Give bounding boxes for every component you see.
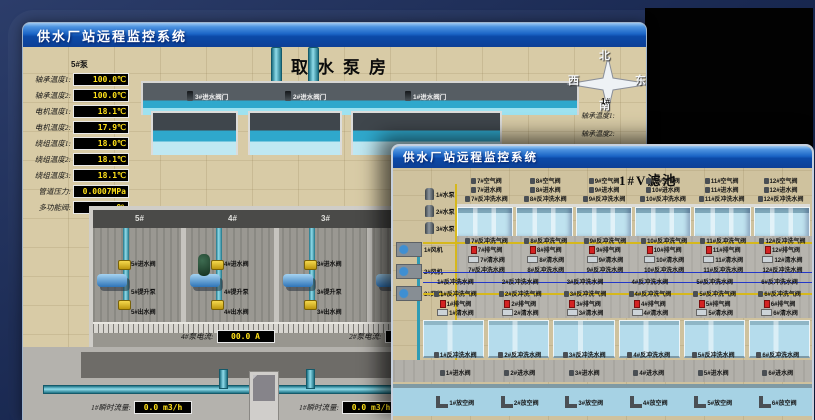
valve-icon [762, 370, 767, 376]
sensor-value: 18.1℃ [73, 105, 129, 118]
valve-label: 6#反冲洗水阀 [761, 277, 798, 286]
clean-water-valve-icon [703, 256, 714, 263]
valve-label: 10#进水阀 [652, 185, 680, 194]
red-valve-icon [765, 246, 771, 254]
sensor-row: 绕组温度2: 18.1℃ [23, 153, 141, 166]
filter-cells-top [457, 204, 810, 239]
inlet-valve-icon[interactable] [211, 260, 224, 270]
flow-readout-1: 1#瞬时流量: 0.0 m3/h [91, 401, 192, 414]
sensor-value: 18.1℃ [73, 169, 129, 182]
red-valve-icon [530, 246, 536, 254]
valve-icon [756, 352, 761, 358]
valve-label: 9#反冲洗水阀 [589, 194, 626, 203]
backwash-water-row-top: 7#反冲洗水阀8#反冲洗水阀9#反冲洗水阀10#反冲洗水阀11#反冲洗水阀12#… [457, 194, 810, 203]
valve-label: 10#反冲洗水阀 [646, 194, 686, 203]
valve-label: 9#空气阀 [595, 176, 620, 185]
backwash-water-pipe-row-bottom: 1#反冲洗水阀2#反冲洗水阀3#反冲洗水阀4#反冲洗水阀5#反冲洗水阀6#反冲洗… [423, 277, 812, 286]
backwash-gas-valve[interactable]: 11#反冲洗气阀 [694, 236, 753, 245]
valve-icon [629, 291, 634, 297]
red-valve-icon [699, 300, 705, 308]
pump-icon [425, 188, 434, 200]
pump4-current-readout: 4#泵电流: 00.0 A [181, 330, 275, 343]
inlet-valve[interactable]: 1#进水阀 [423, 368, 488, 377]
panel-header: 1# [601, 97, 610, 106]
valve-label: 9#反冲洗水阀 [587, 265, 624, 274]
sensor-label: 轴承温度2: [581, 129, 615, 139]
outlet-valve-icon[interactable] [304, 300, 317, 310]
water-pump-unit[interactable]: 1#水泵 [393, 188, 455, 200]
valve-icon [471, 178, 476, 184]
sensor-label: 轴承温度1: [581, 111, 615, 121]
filter-pool-scene: 1#V滤池 1#水泵 2#水泵 3#水泵 1#风机 [393, 168, 812, 420]
backwash-water-valve[interactable]: 10#反冲洗水阀 [633, 194, 692, 203]
valve-icon [465, 196, 470, 202]
clean-water-valve[interactable]: 7#清水阀 [457, 255, 516, 264]
valve-label: 8#反冲洗气阀 [530, 236, 567, 245]
inlet-valve[interactable]: 10#进水阀 [633, 185, 692, 194]
pump-label: 3#水泵 [436, 224, 455, 233]
lift-pump-icon[interactable] [283, 274, 313, 287]
backwash-water-valve[interactable]: 12#反冲洗水阀 [751, 194, 810, 203]
valve-label: 7#清水阀 [480, 255, 505, 264]
clean-water-valve[interactable]: 5#清水阀 [682, 308, 747, 317]
valve-label: 1#放空阀 [449, 398, 474, 407]
clean-water-valve[interactable]: 4#清水阀 [617, 308, 682, 317]
air-valve[interactable]: 11#空气阀 [692, 176, 751, 185]
sensor-value: 18.1℃ [73, 153, 129, 166]
sensor-label: 轴承温度1: [23, 74, 71, 85]
air-valve[interactable]: 8#空气阀 [516, 176, 575, 185]
filter-cell[interactable] [457, 207, 513, 239]
filter-cell[interactable] [694, 207, 750, 239]
inlet-valve-row-top: 7#进水阀8#进水阀9#进水阀10#进水阀11#进水阀12#进水阀 [457, 185, 810, 194]
valve-label: 2#清水阀 [514, 308, 539, 317]
valve-label: 11#反冲洗水阀 [705, 194, 745, 203]
drain-valve[interactable]: 4#放空阀 [617, 396, 682, 408]
filter-pool-titlebar[interactable]: 供水厂站远程监控系统 [393, 146, 812, 168]
intake-valve-label: 2#进水阀门 [293, 91, 326, 101]
sensor-label: 电机温度2: [23, 122, 71, 133]
drain-valve-icon [630, 396, 642, 408]
clean-water-valve[interactable]: 6#清水阀 [747, 308, 812, 317]
valve-label: 8#空气阀 [536, 176, 561, 185]
backwash-water-valve[interactable]: 4#反冲洗水阀 [617, 277, 682, 286]
inlet-valve-label: 5#进水阀 [131, 259, 156, 268]
valve-icon [705, 187, 710, 193]
inlet-valve-label: 4#进水阀 [224, 259, 249, 268]
valve-icon [700, 238, 705, 244]
backwash-gas-valve[interactable]: 10#反冲洗气阀 [635, 236, 694, 245]
valve-label: 11#清水阀 [715, 255, 743, 264]
inlet-valve[interactable]: 4#进水阀 [617, 368, 682, 377]
sensor-row: 电机温度2: 17.9℃ [23, 121, 141, 134]
outlet-valve-icon[interactable] [118, 300, 131, 310]
clean-water-valve-icon [762, 256, 773, 263]
valve-label: 6#排气阀 [771, 299, 796, 308]
pump-label: 5#提升泵 [131, 287, 156, 296]
blower-icon [396, 286, 422, 301]
air-valve[interactable]: 12#空气阀 [751, 176, 810, 185]
valve-label: 7#反冲洗气阀 [471, 236, 508, 245]
valve-label: 10#反冲洗气阀 [647, 236, 687, 245]
drain-valve-row: 1#放空阀2#放空阀3#放空阀4#放空阀5#放空阀6#放空阀 [423, 396, 810, 408]
backwash-water-valve[interactable]: 9#反冲洗水阀 [575, 194, 634, 203]
blower-icon [396, 242, 422, 257]
filter-cell[interactable] [576, 207, 632, 239]
window-filter-pool: 供水厂站远程监控系统 1#V滤池 1#水泵 2#水泵 3#水泵 [391, 144, 814, 420]
valve-label: 6#反冲洗水阀 [762, 350, 799, 359]
backwash-gas-valve[interactable]: 8#反冲洗气阀 [516, 236, 575, 245]
inlet-valve-icon[interactable] [304, 260, 317, 270]
sensor-label: 轴承温度2: [23, 90, 71, 101]
valve-label: 12#进水阀 [770, 185, 798, 194]
clean-water-valve[interactable]: 10#清水阀 [635, 255, 694, 264]
clean-water-valve-icon [632, 309, 643, 316]
valve-label: 4#清水阀 [644, 308, 669, 317]
drain-valve[interactable]: 5#放空阀 [681, 396, 746, 408]
lift-pump-icon[interactable] [97, 274, 127, 287]
valve-label: 11#空气阀 [711, 176, 739, 185]
inlet-valve-label: 3#进水阀 [317, 259, 342, 268]
valve-icon [187, 91, 193, 101]
backwash-water-valve[interactable]: 5#反冲洗水阀 [682, 277, 747, 286]
drain-valve-icon [436, 396, 448, 408]
pump-icon [425, 222, 434, 234]
backwash-gas-valve[interactable]: 1#反冲洗气阀 [423, 289, 488, 298]
outlet-valve-label: 5#出水阀 [131, 307, 156, 316]
valve-label: 10#清水阀 [656, 255, 684, 264]
intake-valve[interactable]: 3#进水阀门 [187, 91, 228, 101]
valve-label: 3#排气阀 [576, 299, 601, 308]
scene-title-pump-house: 取水泵房 [291, 53, 395, 78]
backwash-gas-valve[interactable]: 12#反冲洗气阀 [753, 236, 812, 245]
valve-label: 4#反冲洗气阀 [635, 289, 672, 298]
backwash-water-valve[interactable]: 1#反冲洗水阀 [423, 277, 488, 286]
vent-valve[interactable]: 7#排气阀 [457, 245, 516, 254]
vent-valve[interactable]: 10#排气阀 [635, 245, 694, 254]
valve-icon [434, 291, 439, 297]
valve-label: 10#空气阀 [652, 176, 680, 185]
valve-label: 2#进水阀 [510, 368, 535, 377]
clean-water-valve[interactable]: 9#清水阀 [575, 255, 634, 264]
lift-pump-icon[interactable] [190, 274, 220, 287]
valve-label: 2#反冲洗气阀 [505, 289, 542, 298]
current-label: 4#泵电流: [181, 331, 214, 342]
outlet-valve-label: 3#出水阀 [317, 307, 342, 316]
valve-icon [699, 196, 704, 202]
valve-icon [758, 291, 763, 297]
vent-valve[interactable]: 5#排气阀 [682, 299, 747, 308]
intake-valve-label: 3#进水阀门 [195, 91, 228, 101]
intake-valve[interactable]: 2#进水阀门 [285, 91, 326, 101]
pipe-stub [219, 369, 228, 389]
backwash-water-valve[interactable]: 10#反冲洗水阀 [635, 265, 694, 274]
backwash-gas-valve[interactable]: 4#反冲洗气阀 [617, 289, 682, 298]
valve-label: 2#放空阀 [514, 398, 539, 407]
flow-readout-2: 1#瞬时流量: 0.0 m3/h [299, 401, 400, 414]
drain-valve[interactable]: 1#放空阀 [423, 396, 488, 408]
backwash-gas-valve[interactable]: 9#反冲洗气阀 [575, 236, 634, 245]
backwash-water-valve[interactable]: 9#反冲洗水阀 [575, 265, 634, 274]
backwash-water-valve[interactable]: 6#反冲洗水阀 [747, 277, 812, 286]
backwash-gas-valve[interactable]: 6#反冲洗气阀 [747, 289, 812, 298]
inlet-valve[interactable]: 6#进水阀 [746, 368, 811, 377]
window-title: 供水厂站远程监控系统 [37, 26, 187, 45]
inlet-valve[interactable]: 2#进水阀 [488, 368, 553, 377]
valve-label: 6#清水阀 [773, 308, 798, 317]
backwash-water-valve[interactable]: 7#反冲洗水阀 [457, 265, 516, 274]
inlet-valve[interactable]: 7#进水阀 [457, 185, 516, 194]
sensor-row: 管道压力: 0.0007MPa [23, 185, 141, 198]
drain-valve[interactable]: 3#放空阀 [552, 396, 617, 408]
backwash-water-valve[interactable]: 12#反冲洗水阀 [753, 265, 812, 274]
pump-icon [425, 205, 434, 217]
intake-channel [248, 111, 342, 155]
valve-label: 1#反冲洗气阀 [440, 289, 477, 298]
valve-label: 4#反冲洗水阀 [633, 350, 670, 359]
air-valve-row: 7#空气阀8#空气阀9#空气阀10#空气阀11#空气阀12#空气阀 [457, 176, 810, 185]
valve-icon [583, 196, 588, 202]
vent-valve[interactable]: 9#排气阀 [575, 245, 634, 254]
valve-icon [764, 187, 769, 193]
desktop: 供水厂站远程监控系统 取水泵房 5#泵 轴承温度1: 100.0℃ 轴承温度2:… [0, 0, 815, 420]
backwash-water-valve[interactable]: 3#反冲洗水阀 [553, 277, 618, 286]
drain-channel: 1#放空阀2#放空阀3#放空阀4#放空阀5#放空阀6#放空阀 [393, 384, 812, 416]
backwash-water-valve[interactable]: 11#反冲洗水阀 [694, 265, 753, 274]
red-valve-icon [569, 300, 575, 308]
valve-label: 12#反冲洗水阀 [762, 265, 802, 274]
sensor-label: 电机温度1: [23, 106, 71, 117]
backwash-water-valve[interactable]: 5#反冲洗水阀 [681, 350, 746, 359]
valve-icon [440, 370, 445, 376]
valve-label: 11#反冲洗水阀 [703, 265, 743, 274]
vent-valve[interactable]: 1#排气阀 [423, 299, 488, 308]
clean-water-valve[interactable]: 1#清水阀 [423, 308, 488, 317]
drain-valve-icon [501, 396, 513, 408]
current-value: 00.0 A [217, 330, 275, 343]
intake-valve[interactable]: 1#进水阀门 [405, 91, 446, 101]
vent-valve[interactable]: 12#排气阀 [753, 245, 812, 254]
backwash-water-valve[interactable]: 11#反冲洗水阀 [692, 194, 751, 203]
valve-label: 1#反冲洗水阀 [437, 277, 474, 286]
backwash-water-valve[interactable]: 2#反冲洗水阀 [488, 277, 553, 286]
valve-label: 1#反冲洗水阀 [440, 350, 477, 359]
inlet-valve[interactable]: 12#进水阀 [751, 185, 810, 194]
valve-label: 2#反冲洗水阀 [502, 277, 539, 286]
blower-icon [396, 264, 422, 279]
sensor-row: 绕组温度1: 18.0℃ [23, 137, 141, 150]
valve-icon [641, 238, 646, 244]
backwash-gas-valve[interactable]: 5#反冲洗气阀 [682, 289, 747, 298]
valve-icon [563, 352, 568, 358]
backwash-water-valve[interactable]: 6#反冲洗水阀 [746, 350, 811, 359]
valve-label: 1#清水阀 [449, 308, 474, 317]
valve-icon [569, 370, 574, 376]
valve-label: 11#排气阀 [713, 245, 741, 254]
equipment-cabinet[interactable] [249, 371, 279, 420]
valve-label: 9#清水阀 [599, 255, 624, 264]
vent-valve[interactable]: 4#排气阀 [617, 299, 682, 308]
valve-icon [698, 370, 703, 376]
valve-icon [758, 196, 763, 202]
filter-cell[interactable] [754, 207, 810, 239]
backwash-gas-valve[interactable]: 3#反冲洗气阀 [553, 289, 618, 298]
sensor-label: 绕组温度3: [23, 170, 71, 181]
valve-label: 4#放空阀 [643, 398, 668, 407]
valve-icon [434, 352, 439, 358]
backwash-water-valve[interactable]: 7#反冲洗水阀 [457, 194, 516, 203]
backwash-water-row-bottom: 1#反冲洗水阀2#反冲洗水阀3#反冲洗水阀4#反冲洗水阀5#反冲洗水阀6#反冲洗… [423, 350, 810, 359]
valve-label: 8#反冲洗水阀 [530, 194, 567, 203]
clean-water-valve-icon [644, 256, 655, 263]
clean-water-valve[interactable]: 12#清水阀 [753, 255, 812, 264]
clean-water-valve[interactable]: 3#清水阀 [553, 308, 618, 317]
inlet-valve[interactable]: 3#进水阀 [552, 368, 617, 377]
valve-label: 9#排气阀 [596, 245, 621, 254]
backwash-gas-valve[interactable]: 7#反冲洗气阀 [457, 236, 516, 245]
valve-icon [759, 238, 764, 244]
outlet-valve-label: 4#出水阀 [224, 307, 249, 316]
outlet-valve-icon[interactable] [211, 300, 224, 310]
valve-label: 7#进水阀 [477, 185, 502, 194]
backwash-water-valve[interactable]: 8#反冲洗水阀 [516, 265, 575, 274]
backwash-gas-valve[interactable]: 2#反冲洗气阀 [488, 289, 553, 298]
valve-label: 5#反冲洗水阀 [696, 277, 733, 286]
vent-valve[interactable]: 2#排气阀 [488, 299, 553, 308]
bay-number: 3# [279, 210, 372, 228]
red-valve-icon [706, 246, 712, 254]
clean-water-valve[interactable]: 11#清水阀 [694, 255, 753, 264]
valve-icon [646, 187, 651, 193]
vent-valve[interactable]: 3#排气阀 [553, 299, 618, 308]
blower-unit[interactable]: 1#风机 [393, 242, 443, 257]
valve-label: 6#反冲洗气阀 [764, 289, 801, 298]
vent-valve[interactable]: 6#排气阀 [747, 299, 812, 308]
valve-label: 5#进水阀 [704, 368, 729, 377]
pump-house-titlebar[interactable]: 供水厂站远程监控系统 [23, 23, 646, 47]
valve-icon [524, 196, 529, 202]
backwash-water-valve[interactable]: 3#反冲洗水阀 [552, 350, 617, 359]
valve-label: 11#反冲洗气阀 [706, 236, 746, 245]
valve-label: 2#排气阀 [511, 299, 536, 308]
flow-label: 1#瞬时流量: [299, 402, 339, 413]
valve-label: 12#反冲洗气阀 [765, 236, 805, 245]
backwash-water-pipe-row-top: 7#反冲洗水阀8#反冲洗水阀9#反冲洗水阀10#反冲洗水阀11#反冲洗水阀12#… [457, 265, 812, 274]
clean-water-valve[interactable]: 8#清水阀 [516, 255, 575, 264]
valve-icon [499, 291, 504, 297]
walkway: 1#进水阀2#进水阀3#进水阀4#进水阀5#进水阀6#进水阀 [393, 360, 812, 382]
air-valve[interactable]: 9#空气阀 [575, 176, 634, 185]
compass-west: 西 [568, 72, 579, 88]
valve-label: 3#进水阀 [575, 368, 600, 377]
sensor-label: 绕组温度1: [23, 138, 71, 149]
flow-value: 0.0 m3/h [134, 401, 192, 414]
inlet-valve-row-bottom: 1#进水阀2#进水阀3#进水阀4#进水阀5#进水阀6#进水阀 [423, 368, 810, 377]
inlet-valve[interactable]: 8#进水阀 [516, 185, 575, 194]
filter-cell[interactable] [635, 207, 691, 239]
backwash-gas-row-bottom: 1#反冲洗气阀2#反冲洗气阀3#反冲洗气阀4#反冲洗气阀5#反冲洗气阀6#反冲洗… [423, 289, 812, 298]
sensor-label: 多功能阀: [23, 202, 71, 213]
bay-number: 4# [186, 210, 279, 228]
intake-valve-label: 1#进水阀门 [413, 91, 446, 101]
vent-valve[interactable]: 11#排气阀 [694, 245, 753, 254]
clean-water-valve-icon [567, 309, 578, 316]
backwash-water-valve[interactable]: 8#反冲洗水阀 [516, 194, 575, 203]
clean-water-row-bottom: 1#清水阀2#清水阀3#清水阀4#清水阀5#清水阀6#清水阀 [423, 308, 812, 317]
clean-water-valve-icon [696, 309, 707, 316]
valve-label: 3#清水阀 [579, 308, 604, 317]
valve-label: 8#反冲洗水阀 [527, 265, 564, 274]
valve-label: 12#排气阀 [772, 245, 800, 254]
pump-label: 2#水泵 [436, 207, 455, 216]
flow-label: 1#瞬时流量: [91, 402, 131, 413]
valve-icon [627, 352, 632, 358]
bay-number: 5# [93, 210, 186, 228]
drain-valve-icon [694, 396, 706, 408]
valve-label: 7#排气阀 [478, 245, 503, 254]
drain-valve-icon [565, 396, 577, 408]
backwash-water-valve[interactable]: 1#反冲洗水阀 [423, 350, 488, 359]
clean-water-valve[interactable]: 2#清水阀 [488, 308, 553, 317]
water-pump-unit[interactable]: 3#水泵 [393, 222, 455, 234]
window-title: 供水厂站远程监控系统 [403, 149, 538, 165]
valve-label: 5#放空阀 [707, 398, 732, 407]
vent-valve-row-bottom: 1#排气阀2#排气阀3#排气阀4#排气阀5#排气阀6#排气阀 [423, 299, 812, 308]
valve-label: 4#进水阀 [639, 368, 664, 377]
sensor-label: 管道压力: [23, 186, 71, 197]
valve-icon [764, 178, 769, 184]
valve-label: 1#排气阀 [447, 299, 472, 308]
inlet-valve-icon[interactable] [118, 260, 131, 270]
water-pump-unit[interactable]: 2#水泵 [393, 205, 455, 217]
inlet-valve[interactable]: 5#进水阀 [681, 368, 746, 377]
valve-icon [692, 352, 697, 358]
drain-valve[interactable]: 2#放空阀 [488, 396, 553, 408]
valve-label: 5#反冲洗气阀 [699, 289, 736, 298]
drain-valve[interactable]: 6#放空阀 [746, 396, 811, 408]
filter-cell[interactable] [516, 207, 572, 239]
pump-bay: 5#进水阀 5#提升泵 5#出水阀 [93, 228, 186, 322]
valve-icon [640, 196, 645, 202]
drain-valve-icon [759, 396, 771, 408]
inlet-valve[interactable]: 11#进水阀 [692, 185, 751, 194]
air-valve[interactable]: 7#空气阀 [457, 176, 516, 185]
valve-icon [498, 352, 503, 358]
valve-label: 10#反冲洗水阀 [644, 265, 684, 274]
red-valve-icon [471, 246, 477, 254]
valve-label: 1#进水阀 [446, 368, 471, 377]
backwash-water-valve[interactable]: 4#反冲洗水阀 [617, 350, 682, 359]
valve-icon [405, 91, 411, 101]
equipment-image [253, 375, 275, 401]
pipe-stub [306, 369, 315, 389]
valve-icon [504, 370, 509, 376]
sensor-value: 17.9℃ [73, 121, 129, 134]
valve-icon [646, 178, 651, 184]
air-valve[interactable]: 10#空气阀 [633, 176, 692, 185]
valve-label: 3#反冲洗水阀 [569, 350, 606, 359]
inlet-valve[interactable]: 9#进水阀 [575, 185, 634, 194]
valve-label: 6#放空阀 [772, 398, 797, 407]
vent-valve[interactable]: 8#排气阀 [516, 245, 575, 254]
valve-label: 7#空气阀 [477, 176, 502, 185]
red-valve-icon [504, 300, 510, 308]
red-valve-icon [440, 300, 446, 308]
sensor-row: 电机温度1: 18.1℃ [23, 105, 141, 118]
backwash-water-valve[interactable]: 2#反冲洗水阀 [488, 350, 553, 359]
valve-label: 3#反冲洗气阀 [570, 289, 607, 298]
valve-label: 12#反冲洗水阀 [764, 194, 804, 203]
